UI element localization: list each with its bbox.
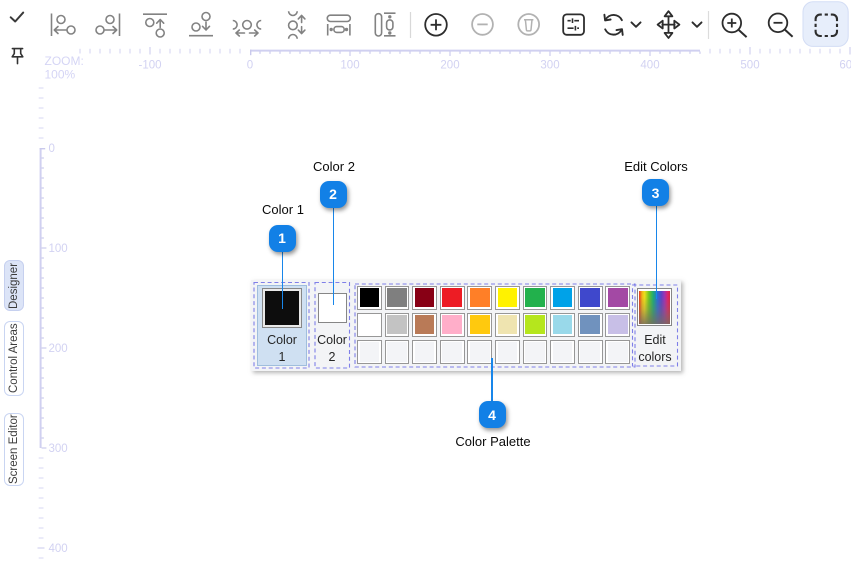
svg-text:0: 0	[247, 60, 253, 72]
svg-text:200: 200	[440, 60, 459, 72]
svg-text:0: 0	[49, 143, 55, 155]
svg-text:500: 500	[740, 60, 759, 72]
svg-text:-100: -100	[138, 60, 161, 72]
svg-text:400: 400	[640, 60, 659, 72]
svg-text:300: 300	[49, 443, 68, 455]
svg-text:100: 100	[49, 243, 68, 255]
svg-text:400: 400	[49, 543, 68, 555]
svg-text:600: 600	[839, 60, 851, 72]
svg-text:300: 300	[540, 60, 559, 72]
svg-text:100: 100	[340, 60, 359, 72]
svg-text:200: 200	[49, 343, 68, 355]
svg-text:100%: 100%	[45, 68, 76, 82]
svg-text:ZOOM:: ZOOM:	[45, 54, 84, 68]
